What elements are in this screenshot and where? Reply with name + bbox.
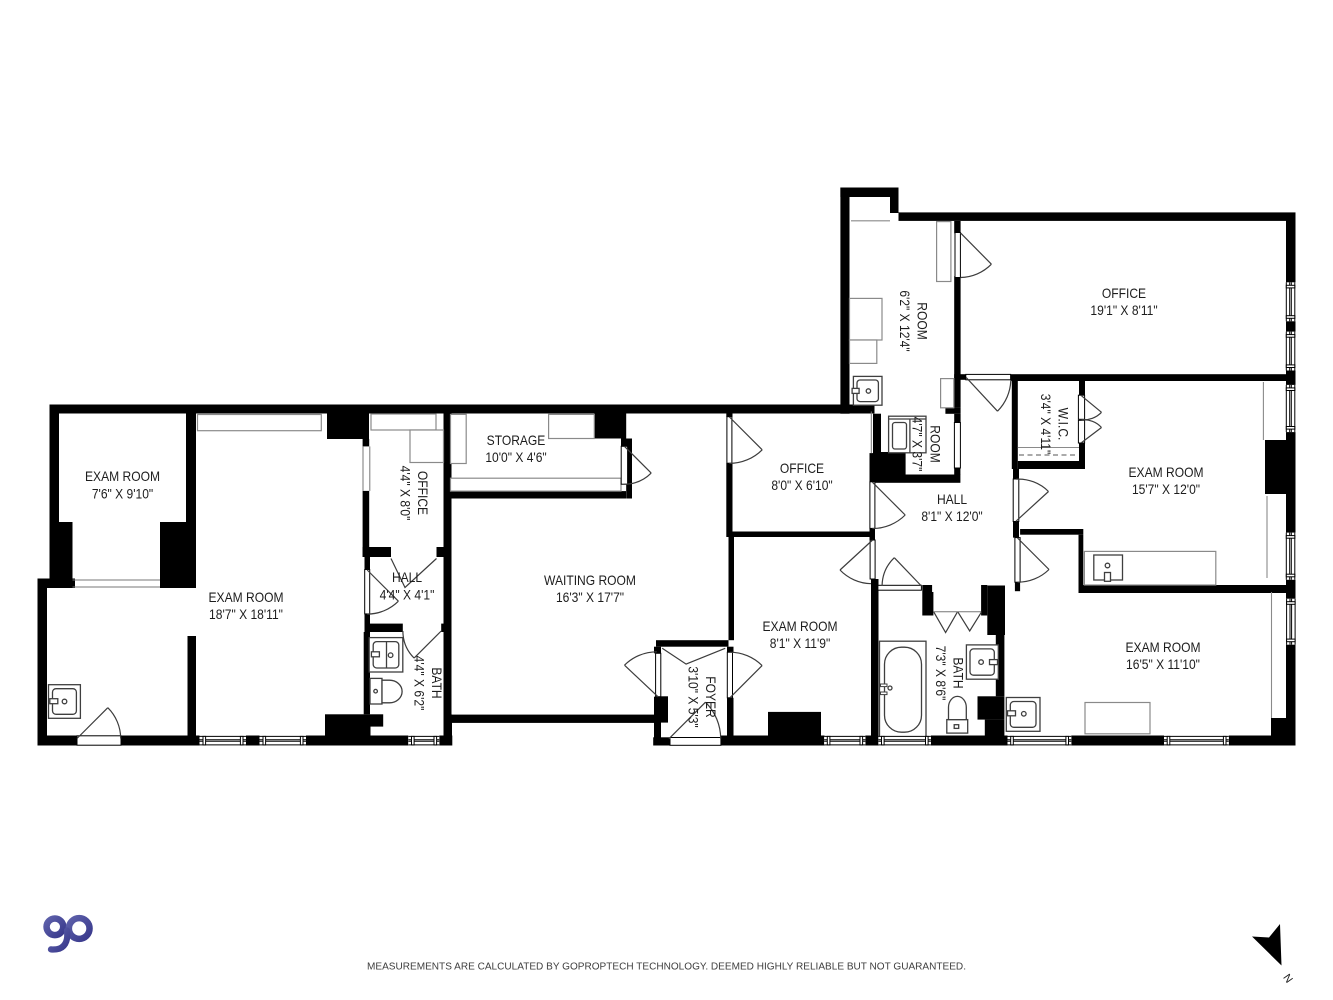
svg-text:W.I.C.: W.I.C. — [1055, 408, 1071, 441]
svg-text:8'1" X 11'9": 8'1" X 11'9" — [770, 635, 831, 651]
svg-text:16'5" X 11'10": 16'5" X 11'10" — [1126, 656, 1200, 672]
svg-text:4'7" X 3'7": 4'7" X 3'7" — [909, 417, 925, 472]
svg-text:HALL: HALL — [937, 491, 967, 507]
svg-text:8'0" X 6'10": 8'0" X 6'10" — [771, 477, 833, 493]
svg-text:15'7" X 12'0": 15'7" X 12'0" — [1132, 481, 1200, 497]
svg-text:OFFICE: OFFICE — [780, 460, 824, 476]
svg-text:4'4" X 6'2": 4'4" X 6'2" — [411, 656, 427, 711]
svg-text:HALL: HALL — [392, 569, 422, 585]
svg-text:ROOM: ROOM — [927, 425, 943, 462]
svg-text:6'2" X 12'4": 6'2" X 12'4" — [897, 290, 913, 352]
svg-text:EXAM ROOM: EXAM ROOM — [85, 468, 160, 484]
svg-text:N: N — [1280, 972, 1294, 985]
svg-text:EXAM ROOM: EXAM ROOM — [1126, 639, 1201, 655]
svg-text:EXAM ROOM: EXAM ROOM — [209, 589, 284, 605]
svg-text:7'3" X 8'6": 7'3" X 8'6" — [933, 646, 949, 701]
svg-text:BATH: BATH — [429, 667, 445, 698]
svg-text:7'6" X 9'10": 7'6" X 9'10" — [92, 486, 154, 502]
svg-text:MEASUREMENTS ARE CALCULATED BY: MEASUREMENTS ARE CALCULATED BY GOPROPTEC… — [367, 962, 966, 973]
svg-text:16'3" X 17'7": 16'3" X 17'7" — [556, 589, 624, 605]
svg-text:3'10" X 5'3": 3'10" X 5'3" — [685, 666, 701, 728]
svg-text:OFFICE: OFFICE — [415, 471, 431, 515]
svg-text:18'7" X 18'11": 18'7" X 18'11" — [209, 606, 283, 622]
svg-text:EXAM ROOM: EXAM ROOM — [763, 618, 838, 634]
svg-text:8'1" X 12'0": 8'1" X 12'0" — [921, 508, 983, 524]
svg-text:OFFICE: OFFICE — [1102, 285, 1146, 301]
svg-text:4'4" X 4'1": 4'4" X 4'1" — [380, 587, 435, 603]
svg-text:STORAGE: STORAGE — [487, 432, 546, 448]
svg-text:19'1" X 8'11": 19'1" X 8'11" — [1090, 302, 1158, 318]
svg-text:BATH: BATH — [950, 657, 966, 688]
svg-text:ROOM: ROOM — [914, 302, 930, 339]
svg-text:WAITING ROOM: WAITING ROOM — [544, 572, 636, 588]
svg-text:FOYER: FOYER — [703, 676, 719, 718]
svg-text:4'4" X 8'0": 4'4" X 8'0" — [397, 466, 413, 521]
svg-text:10'0" X 4'6": 10'0" X 4'6" — [485, 449, 547, 465]
svg-text:3'4" X 4'11": 3'4" X 4'11" — [1038, 394, 1054, 455]
svg-text:EXAM ROOM: EXAM ROOM — [1129, 464, 1204, 480]
